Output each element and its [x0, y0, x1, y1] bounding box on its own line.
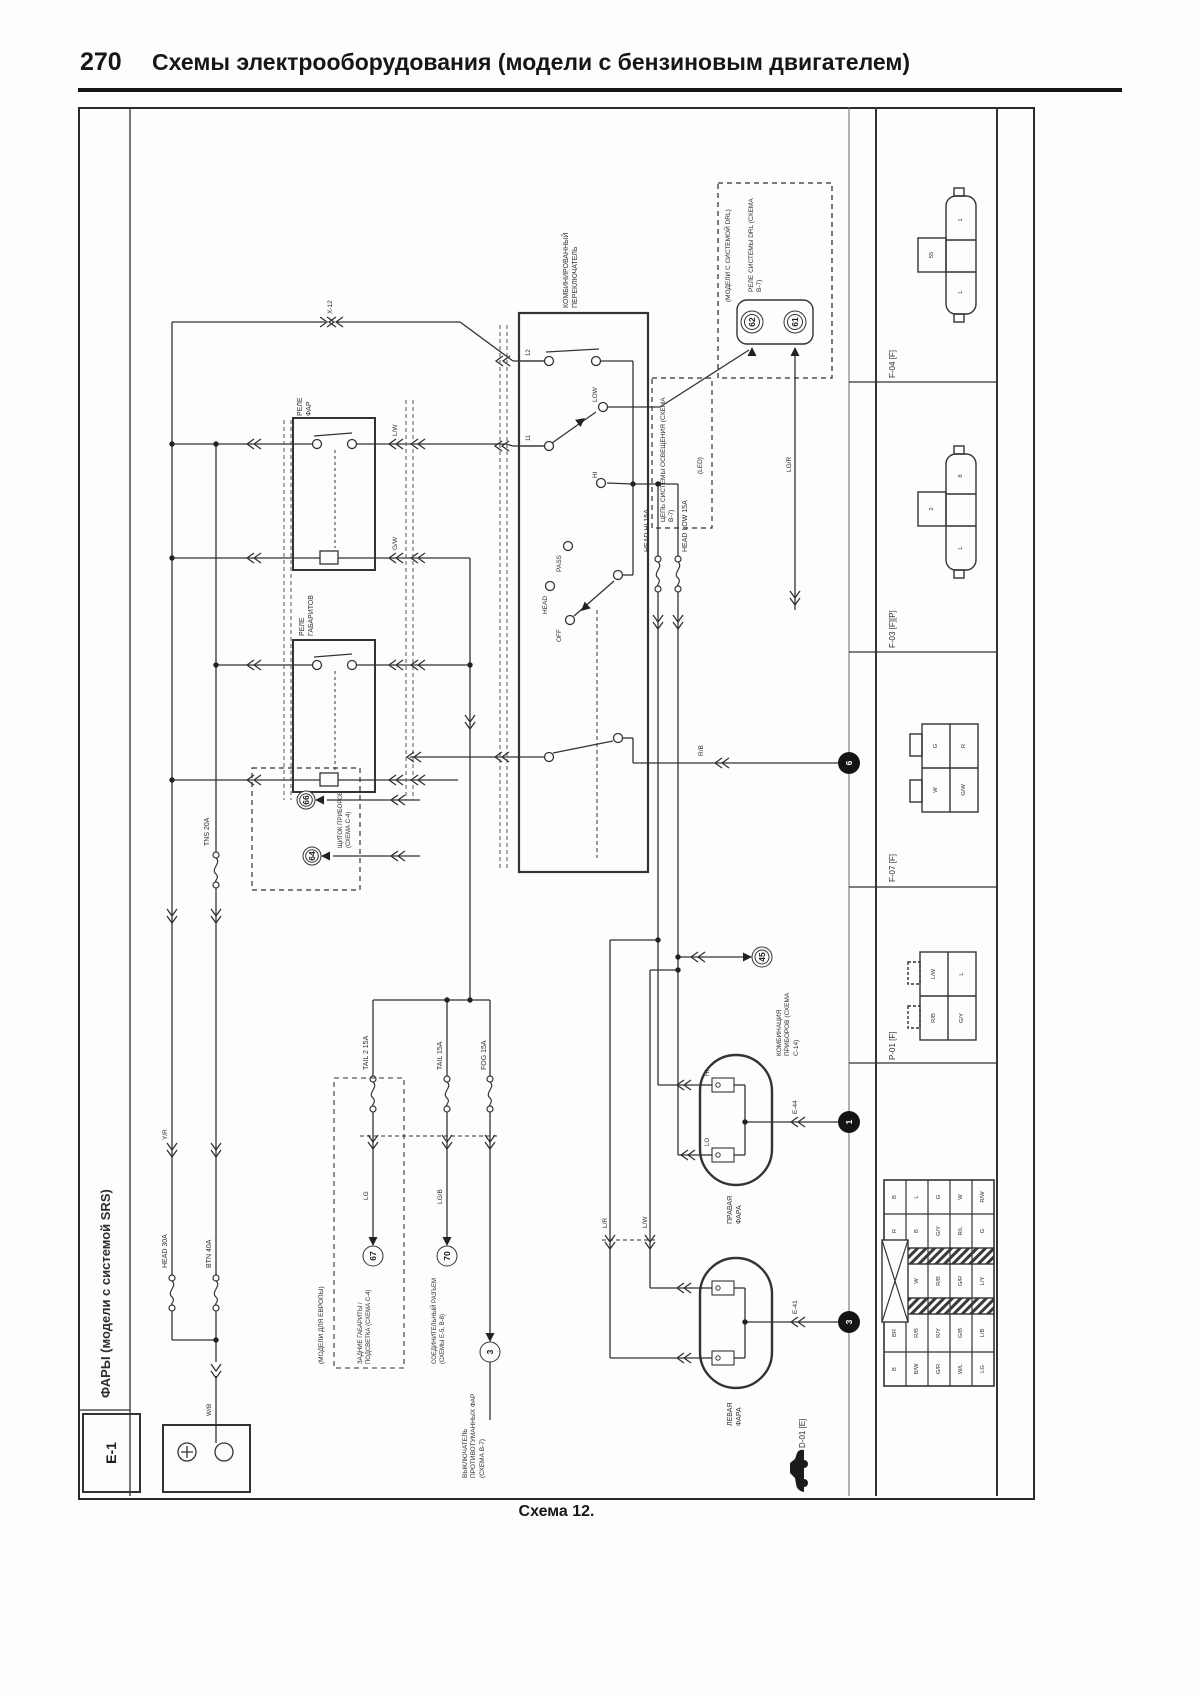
p01-cell-4: G/Y — [959, 1013, 965, 1023]
pin-label-hi: HI — [705, 1070, 713, 1076]
pin-cell: B — [914, 1229, 920, 1233]
ref-circle-3: 3 — [485, 1350, 495, 1355]
connector-f04 — [918, 188, 976, 322]
pin-cell: R/L — [958, 1226, 964, 1235]
car-icon — [790, 1450, 808, 1492]
wire-code-lr: L/R — [602, 1218, 610, 1228]
label-fuse-tns: TNS 20A — [204, 818, 213, 846]
pin-cell: G — [936, 1195, 942, 1200]
pin-cell: L — [914, 1195, 920, 1198]
junction-dots — [169, 441, 747, 1342]
f04-pin-bottom: L — [958, 290, 964, 293]
connector-label-f07: F-07 [F] — [888, 854, 898, 882]
connector-label-f04: F-04 [F] — [888, 350, 898, 378]
label-joint-ref: СОЕДИНИТЕЛЬНЫЙ РАЗЪЕМ (СХЕМЫ Е-5, В-8) — [432, 1278, 448, 1364]
connector-dashed-columns — [284, 325, 507, 870]
pin-cell: LG — [980, 1365, 986, 1373]
pin-cell: W — [914, 1278, 920, 1283]
label-led: (LED) — [697, 457, 705, 474]
junction-circle-3: 3 — [844, 1320, 854, 1325]
connector-f03 — [918, 446, 976, 578]
label-combo-switch: КОМБИНИРОВАННЫЙ ПЕРЕКЛЮЧАТЕЛЬ — [562, 203, 580, 308]
label-relay-head: РЕЛЕ ФАР — [296, 382, 314, 416]
label-light-circuit: ЦЕПЬ СИСТЕМЫ ОСВЕЩЕНИЯ (СХЕМА В-7) — [660, 387, 677, 522]
wire-code-lg: LG — [363, 1191, 371, 1200]
pin-cell: G/R — [936, 1364, 942, 1374]
label-lamp-right: ПРАВАЯ ФАРА — [726, 1184, 744, 1224]
f07-cell-3: W — [933, 787, 939, 792]
f04-tab: 55 — [929, 252, 935, 258]
connector-label-p01: P-01 [F] — [888, 1032, 898, 1060]
drl-relay-box — [718, 183, 832, 610]
pin-cell: G/Y — [936, 1226, 942, 1236]
label-relay-tns: РЕЛЕ ГАБАРИТОВ — [298, 584, 316, 636]
label-terminal-11: 11 — [526, 435, 534, 441]
ref-circle-64: 64 — [307, 851, 317, 860]
wire-code-lw2: L/W — [642, 1216, 650, 1228]
label-switch-hi: HI — [592, 472, 600, 479]
wiring-schematic — [0, 0, 1200, 1697]
ref-circle-62: 62 — [747, 317, 757, 326]
f07-cell-2: R — [961, 744, 967, 748]
supply-wires — [172, 322, 544, 1425]
pin-cell: B — [892, 1367, 898, 1371]
label-switch-off: OFF — [556, 629, 564, 642]
wire-code-gw: G/W — [392, 537, 400, 550]
head-relay-box — [172, 418, 544, 570]
label-fog-ref: ВЫКЛЮЧАТЕЛЬ ПРОТИВОТУМАННЫХ ФАР (СХЕМА В… — [462, 1386, 487, 1478]
p01-cell-2: L — [959, 972, 965, 975]
ref-circle-70: 70 — [442, 1251, 452, 1260]
pin-cell: G/B — [958, 1328, 964, 1338]
label-fuse-head-hi: HEAD HI 15A — [644, 509, 653, 552]
label-euro-models: (МОДЕЛИ ДЛЯ ЕВРОПЫ) — [318, 1276, 326, 1364]
junction-circle-1: 1 — [844, 1120, 854, 1125]
pin-cell: B — [892, 1195, 898, 1199]
label-cluster-ref: ЩИТОК ПРИБОРОВ (СХЕМА С-4) — [338, 778, 354, 848]
connector-label-f03: F-03 [F][P] — [888, 610, 898, 648]
label-fuse-fog: FOG 15A — [481, 1040, 490, 1070]
combo-switch-box — [410, 313, 838, 872]
pin-cell: G/R — [958, 1276, 964, 1286]
label-terminal-12: 12 — [526, 349, 534, 356]
pin-cell: R/Y — [936, 1328, 942, 1338]
wire-code-e41: Е-41 — [792, 1300, 800, 1314]
wire-code-rb: R/B — [698, 745, 706, 756]
label-drl-models: (МОДЕЛИ С СИСТЕМОЙ DRL) — [725, 184, 733, 302]
pin-cell: BR — [892, 1329, 898, 1337]
pin-cell: G — [980, 1229, 986, 1234]
figure-caption: Схема 12. — [78, 1503, 1035, 1521]
battery-icon — [163, 1425, 250, 1492]
manual-page: 270 Схемы электрооборудования (модели с … — [0, 0, 1200, 1697]
f07-cell-4: G/W — [961, 784, 967, 796]
pin-cell: W — [958, 1194, 964, 1199]
connector-f07 — [910, 724, 978, 812]
label-lamp-left: ЛЕВАЯ ФАРА — [726, 1386, 744, 1426]
wire-code-e44: Е-44 — [792, 1100, 800, 1114]
f07-cell-1: G — [933, 744, 939, 749]
label-switch-low: LOW — [592, 387, 600, 402]
pin-cell: R/B — [936, 1276, 942, 1286]
p01-cell-1: L/W — [931, 969, 937, 979]
label-fuse-tail: TAIL 15A — [437, 1042, 446, 1070]
connector-label-d01: D-01 [E] — [798, 1419, 808, 1448]
p01-cell-3: R/B — [931, 1013, 937, 1023]
left-headlamp — [700, 1258, 838, 1388]
label-fuse-head: HEAD 30A — [162, 1234, 171, 1268]
pin-cell: R/B — [914, 1328, 920, 1338]
f03-pin-bottom: L — [958, 546, 964, 549]
pin-label-lo: LO — [705, 1138, 713, 1146]
label-fuse-btn: BTN 40A — [206, 1240, 215, 1268]
ref-circle-45: 45 — [757, 952, 767, 961]
wire-code-x12: X-12 — [327, 300, 335, 314]
pin-cell: L/Y — [980, 1277, 986, 1286]
label-drl-relay: РЕЛЕ СИСТЕМЫ DRL (СХЕМА В-7) — [748, 187, 765, 292]
label-fuse-head-low: HEAD LOW 15A — [682, 500, 691, 552]
ref-circle-61: 61 — [790, 317, 800, 326]
wire-code-lgr: LG/R — [786, 457, 794, 472]
f03-pin-top: 8 — [958, 474, 964, 477]
label-fuse-tail2: TAIL 2 15A — [363, 1036, 372, 1070]
connector-p01 — [908, 952, 976, 1040]
label-switch-pass: PASS — [556, 555, 564, 572]
wire-code-yr: Y/R — [162, 1129, 170, 1140]
sheet-code-label: E-1 — [103, 1442, 119, 1464]
pin-cell: R — [892, 1229, 898, 1233]
label-tail-ref: ЗАДНИЕ ГАБАРИТЫ / ПОДСВЕТКА (СХЕМА С-4) — [358, 1278, 374, 1364]
pin-cell: W/L — [958, 1364, 964, 1374]
f03-tab: 2 — [929, 507, 935, 510]
wire-code-lgb: LG/B — [437, 1189, 445, 1204]
label-switch-head: HEAD — [542, 596, 550, 614]
right-headlamp — [700, 1055, 838, 1185]
ref-circle-67: 67 — [368, 1251, 378, 1260]
f04-pin-top: 1 — [958, 218, 964, 221]
junction-circle-6: 6 — [844, 761, 854, 766]
pin-cell: R/W — [980, 1191, 986, 1202]
label-gauge-ref: КОМБИНАЦИЯ ПРИБОРОВ (СХЕМА С-14) — [776, 986, 801, 1056]
ref-circle-66: 66 — [301, 795, 311, 804]
wire-code-wb: W/B — [206, 1404, 214, 1416]
pin-cell: L/B — [980, 1329, 986, 1338]
wire-code-lw: L/W — [392, 424, 400, 436]
sidebar-section-label: ФАРЫ (модели с системой SRS) — [98, 1189, 114, 1398]
pin-cell: B/W — [914, 1364, 920, 1375]
